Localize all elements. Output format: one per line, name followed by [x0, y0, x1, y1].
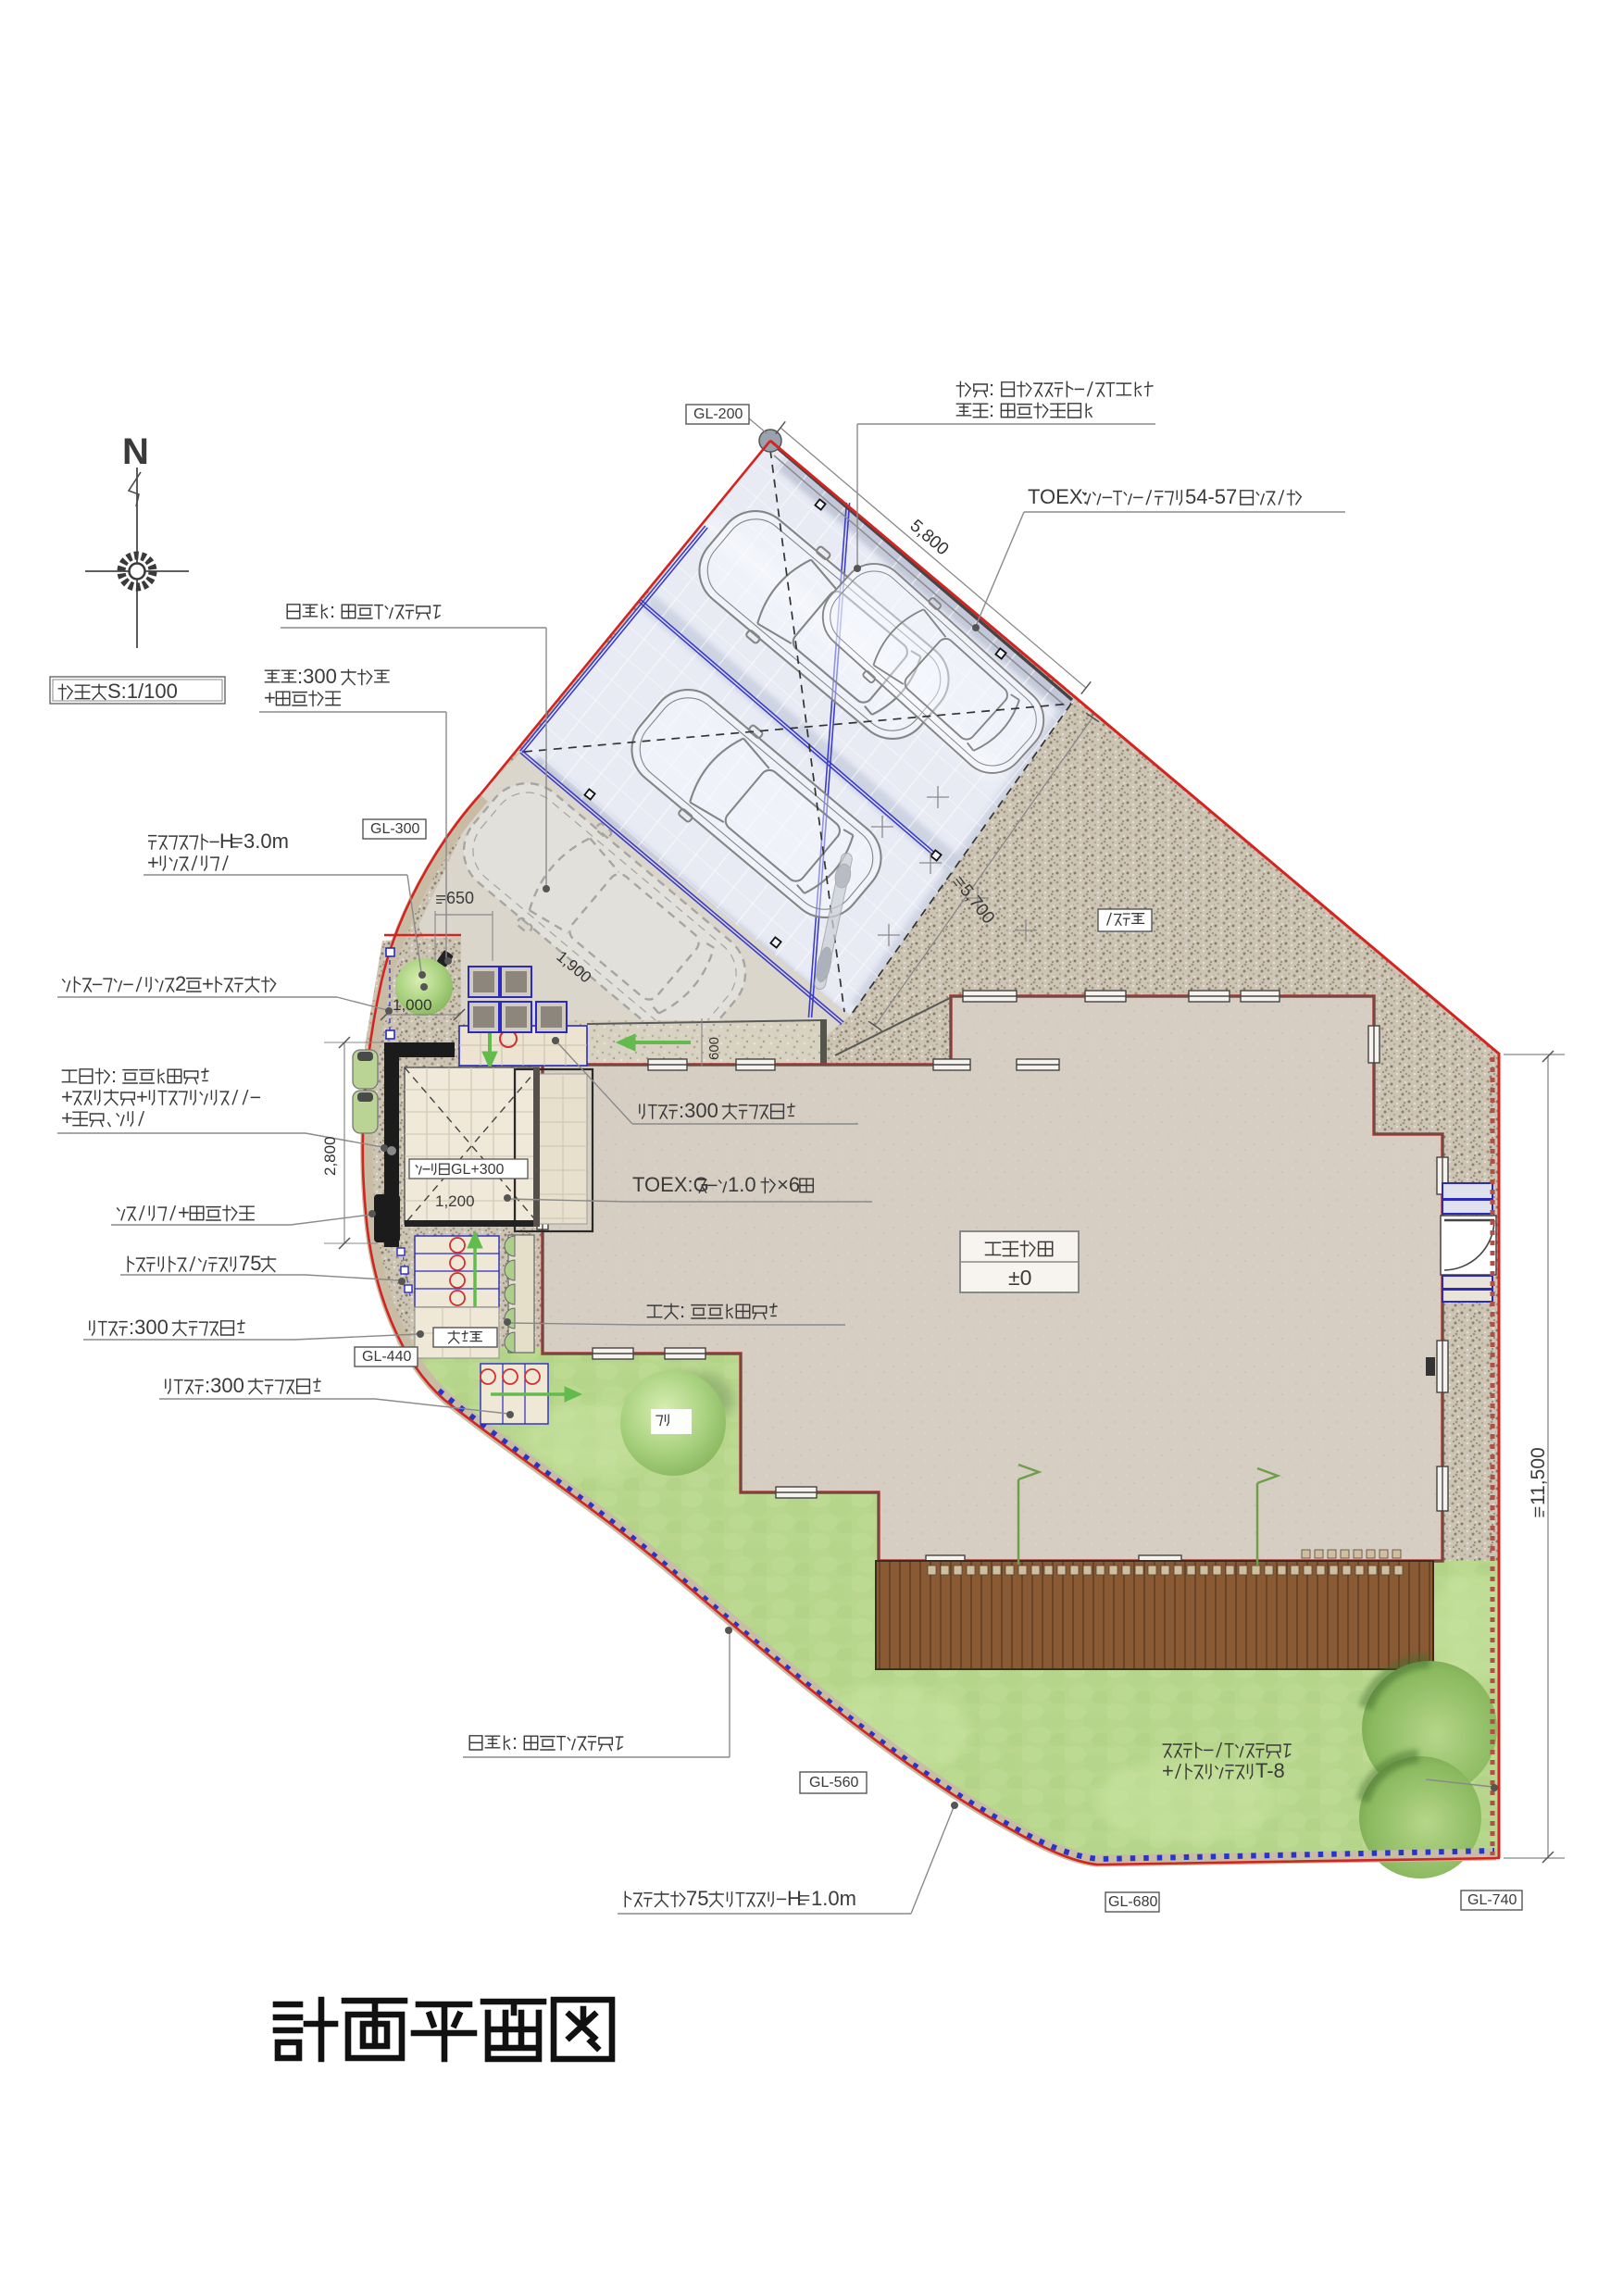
svg-text:75: 75 — [686, 1887, 708, 1910]
svg-text:54-57: 54-57 — [1185, 485, 1237, 508]
svg-text::: : — [512, 1730, 518, 1753]
svg-text:GL+300: GL+300 — [451, 1162, 504, 1178]
svg-text:+: + — [136, 1085, 148, 1108]
svg-text:GL-740: GL-740 — [1467, 1892, 1517, 1908]
svg-text:600: 600 — [706, 1037, 722, 1060]
svg-text::300: :300 — [297, 665, 337, 688]
svg-text::300: :300 — [129, 1316, 169, 1339]
svg-text::: : — [989, 377, 994, 400]
svg-text:TOEX:: TOEX: — [1028, 485, 1089, 508]
svg-text:S:1/100: S:1/100 — [107, 680, 178, 703]
svg-text:+: + — [264, 686, 276, 709]
svg-text:N: N — [122, 431, 149, 472]
svg-text:11,500: 11,500 — [1528, 1447, 1549, 1505]
svg-text::: : — [111, 1064, 117, 1087]
svg-text:+: + — [178, 1201, 190, 1224]
svg-text:75: 75 — [239, 1252, 261, 1275]
svg-text:+: + — [202, 972, 214, 995]
svg-text:650: 650 — [446, 889, 474, 907]
svg-text:3.0m: 3.0m — [243, 830, 289, 853]
svg-text:GL-560: GL-560 — [809, 1775, 858, 1791]
svg-text:×6: ×6 — [777, 1173, 800, 1196]
svg-text::300: :300 — [679, 1099, 718, 1122]
svg-text:H: H — [219, 830, 234, 853]
svg-text:2,800: 2,800 — [321, 1136, 339, 1176]
svg-text:+: + — [61, 1106, 73, 1129]
svg-text:+: + — [61, 1085, 73, 1108]
svg-text:+: + — [147, 851, 159, 874]
svg-text:GL-200: GL-200 — [693, 406, 743, 422]
svg-text:TOEX:G: TOEX:G — [632, 1173, 709, 1196]
svg-text::300: :300 — [205, 1374, 244, 1397]
svg-text:GL-300: GL-300 — [370, 821, 419, 837]
svg-text::: : — [680, 1299, 685, 1322]
svg-text:GL-440: GL-440 — [362, 1349, 411, 1365]
svg-text:2: 2 — [175, 972, 186, 995]
svg-text:+: + — [1162, 1759, 1174, 1782]
svg-text:H: H — [787, 1887, 802, 1910]
svg-text:1.0m: 1.0m — [811, 1887, 856, 1910]
svg-text:±0: ±0 — [1008, 1266, 1031, 1290]
svg-text:1,200: 1,200 — [435, 1192, 475, 1210]
svg-text::: : — [330, 599, 335, 622]
svg-text:1,000: 1,000 — [393, 996, 432, 1014]
svg-text:GL-680: GL-680 — [1108, 1894, 1157, 1910]
svg-text::: : — [989, 398, 994, 421]
svg-text:1.0: 1.0 — [728, 1173, 756, 1196]
svg-text:T-8: T-8 — [1255, 1759, 1285, 1782]
